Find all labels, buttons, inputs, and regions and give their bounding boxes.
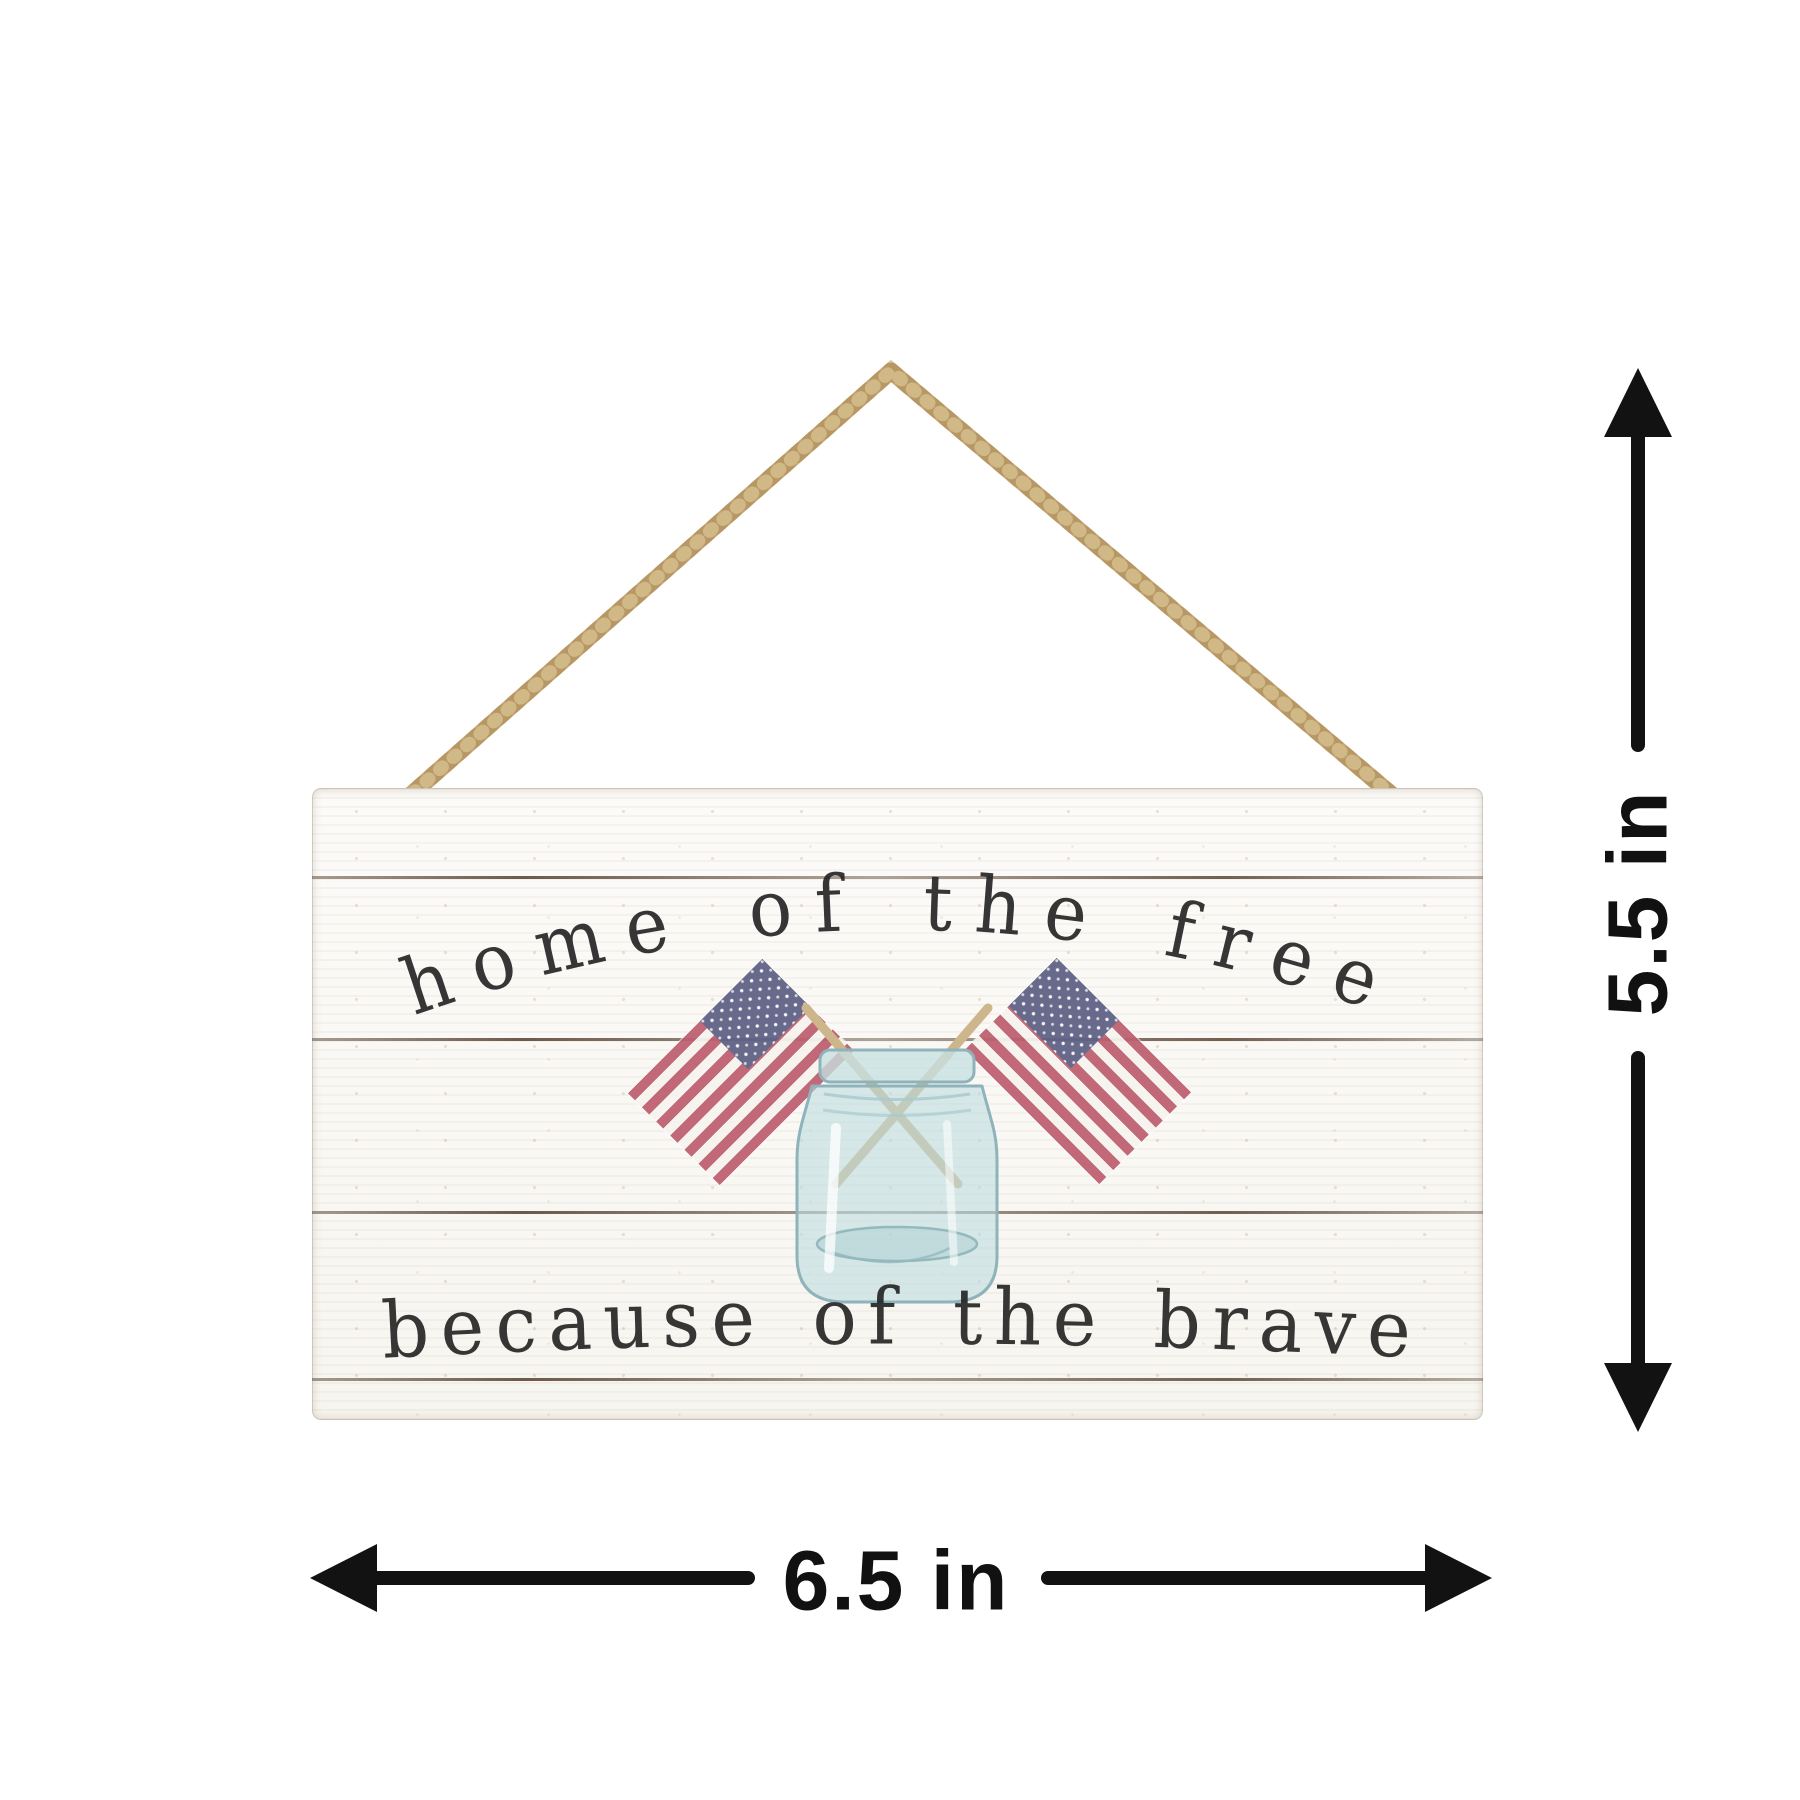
dimension-arrows: [0, 0, 1800, 1800]
height-dimension-label: 5.5 in: [1590, 790, 1687, 1017]
product-image: home of the free because of the brave 5.…: [0, 0, 1800, 1800]
width-dimension-label: 6.5 in: [783, 1533, 1010, 1630]
